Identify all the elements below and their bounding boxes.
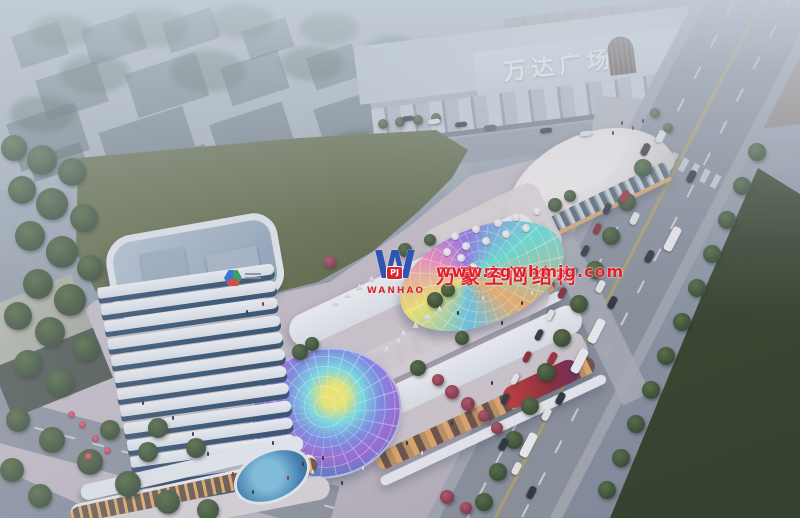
tree (0, 458, 24, 482)
tree (39, 427, 65, 453)
tree (324, 256, 336, 268)
person (207, 452, 209, 456)
tree (635, 495, 661, 518)
parked-car (602, 202, 613, 215)
tree (777, 317, 800, 343)
umbrella-icon (533, 207, 541, 215)
tree (70, 204, 98, 232)
car (428, 118, 441, 124)
person (421, 451, 423, 455)
tree (6, 408, 30, 432)
car (628, 211, 640, 226)
tree (413, 115, 423, 125)
car (455, 121, 468, 127)
tree (15, 221, 45, 251)
tree (14, 350, 42, 378)
tree (564, 190, 576, 202)
tree (410, 360, 426, 376)
tree (440, 490, 454, 504)
tent-icon (395, 338, 402, 344)
watermark-url: www.zgwhmjg.com (436, 262, 624, 281)
tree (35, 317, 65, 347)
tent-icon (344, 292, 351, 298)
tree (475, 493, 493, 511)
person (451, 421, 453, 425)
person (406, 441, 408, 445)
person (341, 481, 343, 485)
tree (718, 211, 736, 229)
person (272, 441, 274, 445)
person (621, 121, 623, 125)
tree (491, 422, 503, 434)
tree (756, 202, 788, 234)
umbrella-icon (85, 453, 92, 460)
tree (28, 484, 52, 508)
tree (684, 362, 716, 394)
tree (115, 471, 141, 497)
tree (598, 481, 616, 499)
umbrella-icon (482, 237, 490, 245)
bus (570, 347, 590, 374)
tree (73, 335, 99, 361)
umbrella-icon (502, 230, 510, 238)
logo-badge: PJ (386, 266, 403, 280)
person (252, 490, 254, 494)
person (362, 466, 364, 470)
car (540, 127, 553, 133)
watermark-logo-icon: W PJ WANHAO (360, 254, 432, 310)
person (471, 401, 473, 405)
tree (1, 135, 27, 161)
tree (478, 410, 490, 422)
person (142, 401, 144, 405)
logo-caption: WANHAO (360, 286, 432, 296)
tree (27, 145, 57, 175)
umbrella-icon (79, 421, 86, 428)
tree (688, 279, 706, 297)
tree (725, 375, 759, 409)
person (632, 126, 634, 130)
person (642, 119, 644, 123)
umbrella-icon (472, 225, 480, 233)
aerial-rendering: 万达广场 (0, 0, 800, 518)
tree (455, 331, 469, 345)
umbrella-icon (68, 411, 75, 418)
tree (744, 324, 780, 360)
bus (663, 225, 683, 252)
tree (197, 499, 219, 518)
tree (741, 477, 771, 507)
person (246, 310, 248, 314)
car (643, 249, 655, 264)
tree (23, 269, 53, 299)
umbrella-icon (522, 224, 530, 232)
tree (666, 412, 698, 444)
umbrella-icon (104, 447, 111, 454)
tree (58, 158, 86, 186)
tree (186, 438, 206, 458)
tree (642, 381, 660, 399)
tree (777, 267, 800, 297)
tree (100, 420, 120, 440)
umbrella-icon (512, 213, 520, 221)
tree (756, 416, 788, 448)
tree (378, 119, 388, 129)
car (685, 169, 697, 184)
tree (748, 143, 766, 161)
tree (627, 415, 645, 433)
tree (688, 476, 720, 508)
tree (432, 374, 444, 386)
tree (4, 302, 32, 330)
tree (548, 198, 562, 212)
person (262, 302, 264, 306)
person (322, 456, 324, 460)
tree (77, 255, 103, 281)
tent-icon (412, 322, 419, 328)
tree (445, 385, 459, 399)
tree (733, 177, 751, 195)
watermark: W PJ WANHAO 万豪空间结构 www.zgwhmjg.com (358, 246, 618, 318)
person (232, 472, 234, 476)
parked-car (534, 328, 545, 341)
person (192, 432, 194, 436)
person (491, 381, 493, 385)
tree (704, 424, 740, 460)
parked-car (522, 350, 533, 363)
tree (46, 368, 74, 396)
parked-car (500, 392, 511, 405)
tree (54, 284, 86, 316)
person (172, 416, 174, 420)
car (580, 130, 593, 136)
tree (612, 449, 630, 467)
tent-icon (383, 346, 390, 352)
tree (8, 176, 36, 204)
person (302, 462, 304, 466)
tree (424, 234, 436, 246)
tent-icon (332, 300, 339, 306)
tree (649, 463, 679, 493)
person (312, 470, 314, 474)
tree (305, 337, 319, 351)
tree (36, 188, 68, 220)
tree (537, 363, 555, 381)
car (525, 485, 537, 500)
tree (673, 313, 691, 331)
car (639, 142, 651, 157)
tree (46, 236, 78, 268)
parked-car (592, 222, 603, 235)
tree (705, 301, 739, 335)
tree (730, 240, 766, 276)
tent-icon (400, 330, 407, 336)
tree (156, 490, 180, 514)
tree (148, 418, 168, 438)
tree (634, 159, 652, 177)
tree (774, 364, 800, 392)
tree (553, 329, 571, 347)
tree (650, 108, 660, 118)
umbrella-icon (494, 219, 502, 227)
car (484, 124, 497, 130)
car (654, 129, 666, 144)
bus (587, 317, 607, 344)
car (510, 461, 522, 476)
umbrella-icon (92, 435, 99, 442)
car (546, 351, 558, 366)
tree (460, 502, 472, 514)
person (612, 131, 614, 135)
tree (602, 227, 620, 245)
parked-car (510, 372, 521, 385)
tree (138, 442, 158, 462)
umbrella-icon (451, 232, 459, 240)
tree (657, 347, 675, 365)
person (501, 321, 503, 325)
person (287, 476, 289, 480)
tree (489, 463, 507, 481)
tree (521, 397, 539, 415)
car (554, 391, 566, 406)
tree (703, 245, 721, 263)
car (540, 407, 552, 422)
